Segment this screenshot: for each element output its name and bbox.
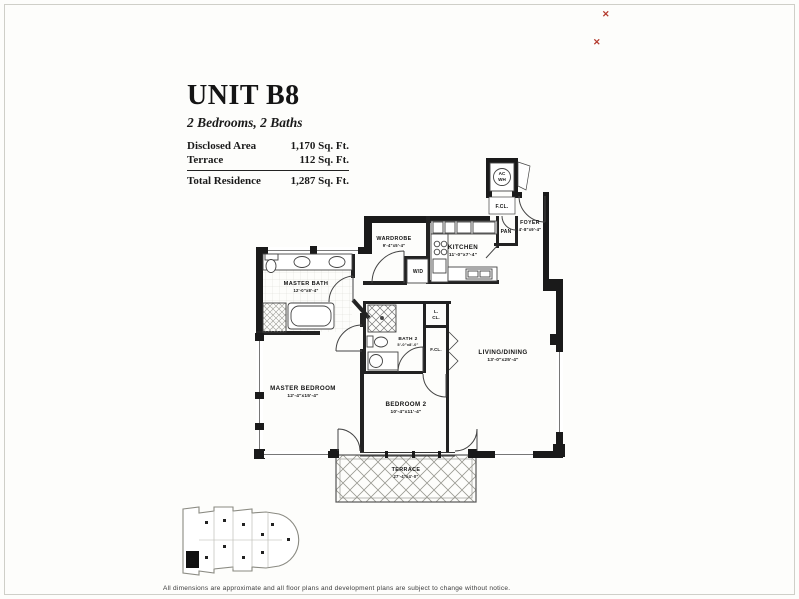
bedroom2-label: BEDROOM 2: [385, 401, 426, 408]
stove-burner: [434, 241, 440, 247]
toilet: [266, 260, 276, 273]
master-shower: [263, 303, 286, 332]
linen-closet-label: L.: [434, 309, 438, 314]
foyer-label: FOYER: [520, 220, 540, 226]
disclaimer-text: All dimensions are approximate and all f…: [163, 585, 510, 592]
linen-closet-label: CL.: [432, 315, 439, 320]
stove-burner: [441, 249, 447, 255]
stove-burner: [441, 241, 447, 247]
acwh-label: WH: [498, 177, 506, 182]
vanity-sink: [294, 257, 310, 268]
master-bedroom-label: MASTER BEDROOM: [270, 385, 336, 392]
pantry-label: PAN: [501, 229, 512, 235]
master-bedroom-dims: 12'-4"x15'-4": [287, 393, 318, 399]
wardrobe-dims: 9'-4"x5'-4": [383, 243, 406, 248]
kitchen-dims: 11'-0"x7'-4": [449, 252, 477, 258]
bath2-sink: [370, 355, 383, 368]
stove-burner: [434, 249, 440, 255]
washer-dryer-label: W/D: [413, 269, 424, 275]
master-bath-label: MASTER BATH: [284, 281, 329, 287]
building-outline: [183, 507, 299, 575]
floorplan-page: ✕ ✕ UNIT B8 2 Bedrooms, 2 Baths Disclose…: [0, 0, 799, 599]
terrace-dims: 27'-4"x4'-0": [393, 474, 418, 479]
foyer-dims: 4'-8"x9'-4": [519, 227, 542, 232]
toilet: [375, 337, 388, 347]
kitchen-label: KITCHEN: [448, 244, 478, 251]
master-bath-dims: 12'-0"x8'-4": [293, 288, 318, 293]
acwh-label: AC: [499, 171, 506, 176]
unit-marker-letter: B: [190, 557, 196, 566]
foyer-closet2-label: F.CL.: [430, 347, 442, 352]
bath2-dims: 5'-0"x8'-0": [397, 342, 418, 347]
keyplan: B: [183, 507, 299, 575]
living-dining-dims: 13'-0"x25'-4": [487, 357, 518, 363]
bedroom2-dims: 10'-4"x11'-4": [390, 409, 421, 415]
vanity-sink: [329, 257, 345, 268]
wardrobe-label: WARDROBE: [376, 236, 411, 242]
floorplan-drawing: AC WH F.CL. PAN W/D FOYER 4'-8"x9'-4" KI…: [0, 0, 799, 599]
terrace-label: TERRACE: [392, 467, 421, 473]
refrigerator: [473, 222, 495, 233]
foyer-closet-label: F.CL.: [496, 204, 509, 210]
living-dining-label: LIVING/DINING: [478, 349, 527, 356]
